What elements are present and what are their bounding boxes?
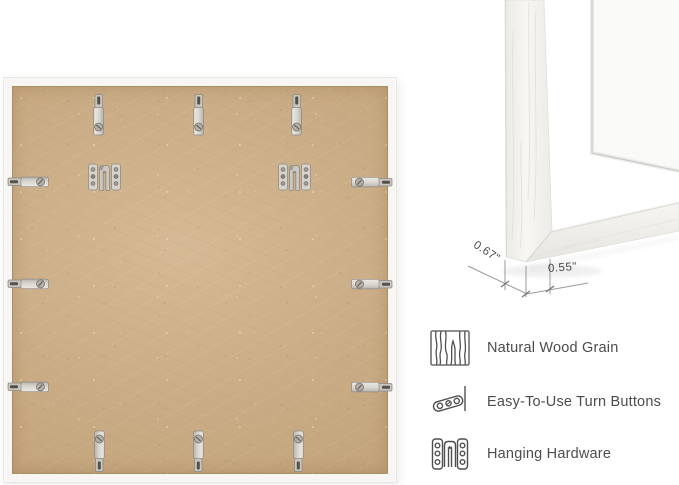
feature-label: Easy-To-Use Turn Buttons xyxy=(487,394,661,410)
turn-button-top-3 xyxy=(290,94,303,136)
turn-button-left-2 xyxy=(8,278,50,291)
feature-row-turn-buttons: Easy-To-Use Turn Buttons xyxy=(430,384,661,420)
frame-back-photo xyxy=(3,77,397,483)
feature-label: Natural Wood Grain xyxy=(487,340,618,356)
turn-button-right-1 xyxy=(350,176,392,189)
turn-button-top-1 xyxy=(92,94,105,136)
turn-button-bottom-2 xyxy=(192,430,205,472)
hanging-hardware-icon xyxy=(430,436,470,472)
turn-button-left-3 xyxy=(8,381,50,394)
feature-label: Hanging Hardware xyxy=(487,446,611,462)
turn-button-bottom-3 xyxy=(292,430,305,472)
turn-button-icon xyxy=(430,384,470,420)
hanging-bracket-left xyxy=(88,161,121,193)
hanging-bracket-right xyxy=(278,161,311,193)
feature-row-hanging-hardware: Hanging Hardware xyxy=(430,436,611,472)
mdf-board xyxy=(12,86,388,474)
turn-button-right-2 xyxy=(350,278,392,291)
mat-opening xyxy=(592,0,679,171)
dimension-label-depth: 0.55" xyxy=(548,261,578,275)
turn-button-top-2 xyxy=(192,94,205,136)
turn-button-right-3 xyxy=(350,381,392,394)
turn-button-left-1 xyxy=(8,176,50,189)
turn-button-bottom-1 xyxy=(93,430,106,472)
dimension-ticks xyxy=(501,281,554,297)
wood-grain-icon xyxy=(430,330,470,366)
feature-row-wood-grain: Natural Wood Grain xyxy=(430,330,618,366)
